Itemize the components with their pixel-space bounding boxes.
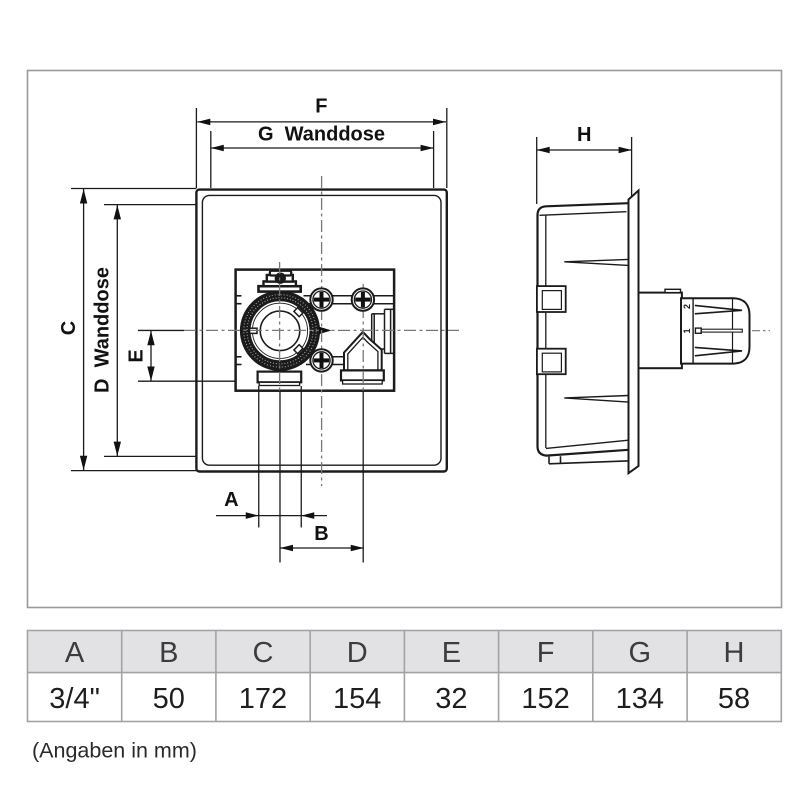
svg-text:E: E: [442, 637, 461, 669]
svg-text:F: F: [315, 95, 327, 117]
svg-text:A: A: [224, 489, 238, 511]
svg-text:F: F: [537, 637, 555, 669]
svg-text:D Wanddose: D Wanddose: [91, 267, 113, 393]
svg-text:C: C: [58, 321, 80, 335]
svg-text:50: 50: [153, 683, 185, 715]
svg-text:G Wanddose: G Wanddose: [258, 124, 385, 146]
svg-text:B: B: [314, 523, 328, 545]
svg-text:2: 2: [682, 304, 692, 309]
svg-text:172: 172: [239, 683, 287, 715]
svg-text:A: A: [65, 637, 85, 669]
svg-text:58: 58: [718, 683, 750, 715]
svg-text:E: E: [125, 349, 147, 362]
svg-text:(Angaben in mm): (Angaben in mm): [32, 739, 197, 763]
svg-text:134: 134: [616, 683, 664, 715]
svg-text:3/4": 3/4": [49, 683, 100, 715]
svg-text:C: C: [253, 637, 274, 669]
svg-text:152: 152: [521, 683, 569, 715]
svg-text:154: 154: [333, 683, 381, 715]
svg-text:H: H: [724, 637, 745, 669]
svg-text:B: B: [159, 637, 178, 669]
svg-text:G: G: [629, 637, 652, 669]
svg-text:H: H: [577, 124, 591, 146]
svg-text:D: D: [347, 637, 368, 669]
svg-text:1: 1: [682, 328, 692, 333]
svg-text:32: 32: [435, 683, 467, 715]
